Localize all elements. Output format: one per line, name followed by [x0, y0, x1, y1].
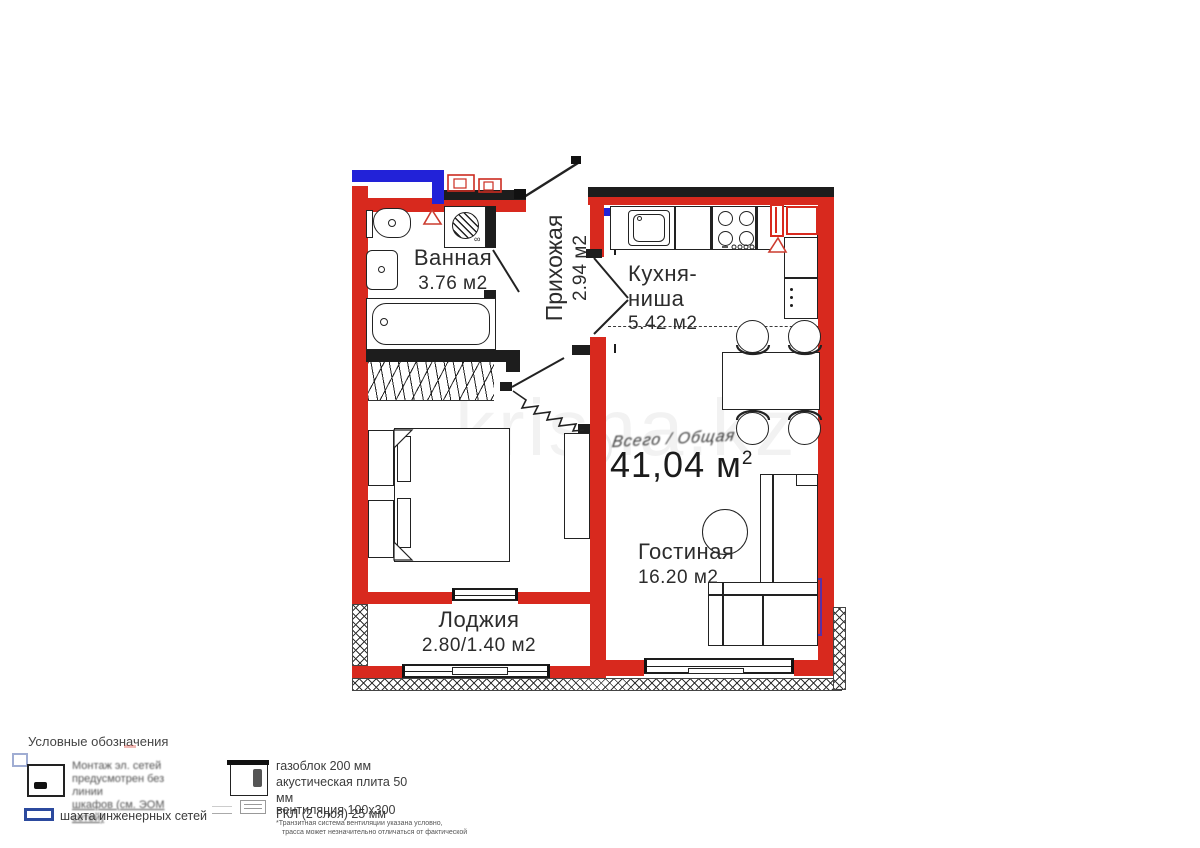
label-bathroom: Ванная 3.76 м2: [398, 246, 508, 294]
stove-burner-2: [739, 211, 754, 226]
wall-wardrobe-corner-b: [506, 350, 520, 372]
kitchen-name: Кухня-ниша: [628, 262, 724, 311]
total-area-sup: 2: [742, 448, 754, 469]
legend-wall-icon-topbar: [227, 760, 269, 765]
legend-shaft-icon: [24, 808, 54, 821]
kitchen-faucet: [637, 216, 642, 221]
living-area: 16.20 м2: [638, 567, 758, 588]
washing-machine-mark: ∞: [474, 234, 480, 244]
kitchen-area: 5.42 м2: [628, 313, 724, 334]
counter-divider-3: [756, 206, 758, 250]
cabinet-dot-1: [790, 288, 793, 291]
desk: [564, 433, 590, 539]
loggia-name: Лоджия: [404, 608, 554, 633]
toilet-drain: [388, 219, 396, 227]
legend-vent-icon-line1: [244, 804, 262, 805]
stool-2: [788, 320, 821, 353]
loggia-left-hatch: [352, 604, 368, 666]
kitchen-door-leaf-1: [594, 258, 628, 298]
legend-vent-icon-line2: [244, 808, 262, 809]
hallway-area: 2.94 м2: [570, 202, 591, 334]
neighbor-fixture-1-inner: [454, 179, 466, 188]
legend-wiring-icon: [27, 764, 65, 797]
wardrobe-hatch: [368, 362, 494, 401]
total-area: 41,04 м2: [610, 444, 753, 486]
total-area-value: 41,04 м: [610, 444, 742, 485]
wall-entry-top-black: [444, 190, 526, 200]
wall-kitchen-top-red: [588, 197, 834, 205]
pillow-2: [397, 498, 411, 548]
label-hallway: Прихожая 2.94 м2: [542, 202, 591, 334]
bathtub-drain: [380, 318, 388, 326]
wall-living-bottom-left: [606, 660, 644, 676]
wall-bathroom-bottom: [366, 350, 500, 362]
kitchen-door-leaf-2: [594, 300, 628, 334]
bed: [394, 428, 510, 562]
dining-table: [722, 352, 820, 410]
legend-title-mark: [124, 745, 136, 748]
living-name: Гостиная: [638, 540, 758, 565]
entrance-door-cap: [571, 156, 581, 164]
tall-cabinet-upper: [784, 237, 818, 278]
loggia-area: 2.80/1.40 м2: [404, 635, 554, 656]
wall-loggia-bottom-right: [550, 666, 592, 678]
legend-wiring-icon-glyph: [34, 782, 47, 789]
sofa-armrest: [722, 582, 724, 646]
legend-shaft-label: шахта инженерных сетей: [60, 808, 207, 824]
pillow-1: [397, 436, 411, 482]
stove-burner-4: [739, 231, 754, 246]
legend-vent-dim-marks: [212, 806, 232, 814]
bathtub-inner: [372, 303, 490, 345]
washbasin-drain: [378, 266, 385, 273]
sofa-headrest: [796, 474, 818, 486]
legend-wiring-line-1: Монтаж эл. сетей: [72, 760, 192, 773]
nightstand-2: [368, 500, 394, 558]
door-tick-lower: [614, 344, 616, 353]
vent-shaft-box: [786, 206, 818, 235]
wall-mid-vertical: [590, 337, 606, 678]
legend-vent-note-line-2: трасса может незначительно отличаться от…: [276, 829, 496, 838]
riser-top-horizontal: [352, 170, 444, 182]
window-living-sash: [688, 668, 744, 674]
vent-duct-line: [775, 207, 777, 233]
floor-plan-page: krisha.kz ∞: [0, 0, 1200, 848]
stool-4: [788, 412, 821, 445]
wall-loggia-bottom-left: [352, 666, 402, 678]
vent-triangle-bathroom: [424, 210, 441, 224]
vent-duct-box: [770, 204, 784, 237]
wall-loggia-top-right: [518, 592, 590, 604]
legend-faint-shaft-icon: [12, 753, 28, 767]
stove-burner-1: [718, 211, 733, 226]
wall-living-bottom-right: [794, 660, 834, 676]
nightstand-1: [368, 430, 394, 486]
riser-top-vertical: [432, 170, 444, 204]
sofa-vertical-edge: [772, 474, 774, 584]
window-bedroom-loggia: [452, 588, 518, 601]
exterior-hatch-right: [833, 607, 846, 690]
bathroom-name: Ванная: [398, 246, 508, 271]
window-loggia-sash: [452, 667, 508, 675]
jamb-bedroom-door-left: [500, 382, 512, 391]
label-living: Гостиная 16.20 м2: [638, 540, 758, 588]
wall-loggia-top-left: [352, 592, 452, 604]
cabinet-dot-3: [790, 304, 793, 307]
stool-1: [736, 320, 769, 353]
wall-kitchen-top-black: [588, 187, 834, 197]
legend-wiring-line-2: предусмотрен без линии: [72, 773, 192, 799]
label-loggia: Лоджия 2.80/1.40 м2: [404, 608, 554, 656]
wall-outer-left: [352, 186, 368, 600]
sofa-vertical: [760, 474, 818, 584]
neighbor-fixture-2-inner: [484, 182, 493, 190]
neighbor-fixture-1: [448, 175, 474, 191]
legend-wall-icon-plug: [253, 769, 262, 787]
sofa-cushion-divider: [762, 596, 764, 646]
jamb-kitchen-door-bottom: [572, 345, 590, 355]
bathroom-area: 3.76 м2: [398, 273, 508, 294]
counter-divider-1: [674, 206, 676, 250]
legend-vent-icon: [240, 800, 266, 814]
jamb-bedroom-door-right: [578, 424, 590, 433]
legend-vent-note: *Транзитная система вентиляции указана у…: [276, 820, 496, 837]
legend-wall-line-1: газоблок 200 мм: [276, 758, 426, 774]
legend-vent-label: вентиляция 100x300: [276, 802, 395, 818]
label-kitchen: Кухня-ниша 5.42 м2: [628, 262, 724, 335]
entrance-door-leaf: [524, 163, 578, 197]
legend-title: Условные обозначения: [28, 734, 168, 749]
hallway-name: Прихожая: [542, 202, 568, 334]
stove-burner-3: [718, 231, 733, 246]
legend-vent-note-line-1: *Транзитная система вентиляции указана у…: [276, 820, 496, 829]
exterior-hatch-bottom: [352, 678, 842, 691]
tall-cabinet-lower: [784, 278, 818, 319]
toilet-tank: [366, 210, 373, 238]
legend-wall-icon: [230, 760, 268, 796]
cabinet-dot-2: [790, 296, 793, 299]
